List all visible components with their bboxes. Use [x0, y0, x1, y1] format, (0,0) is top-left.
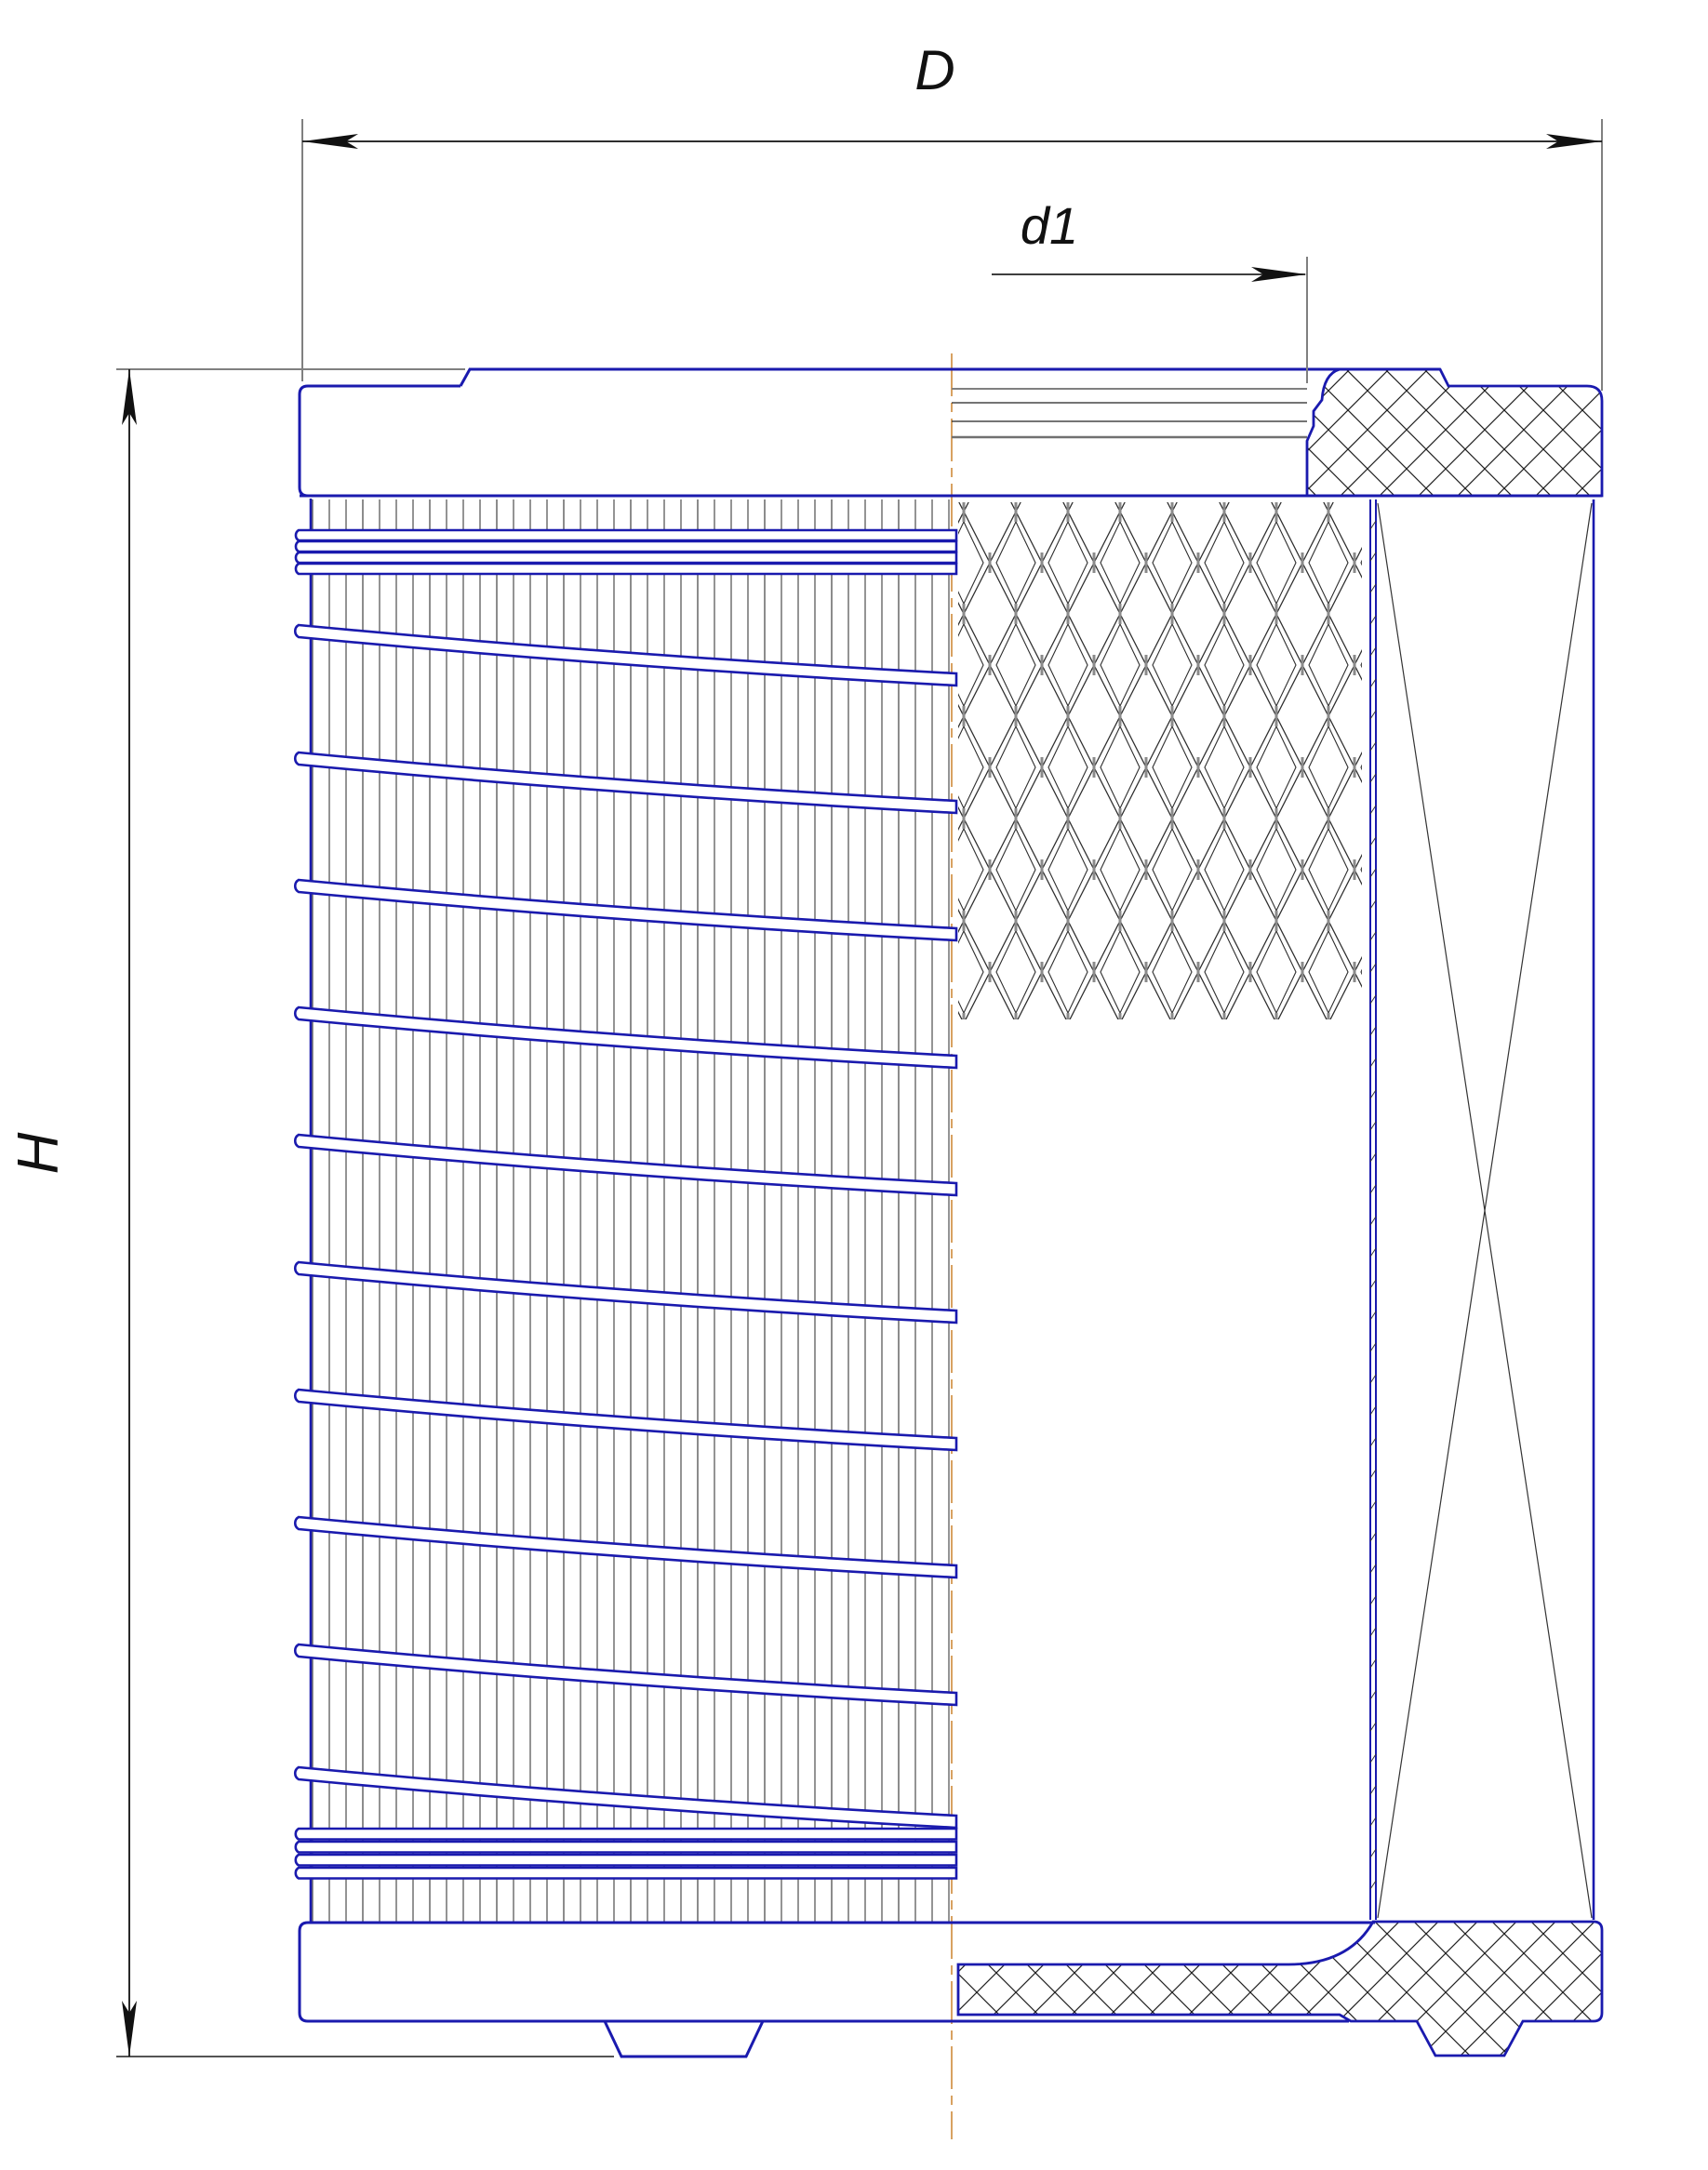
bottom-boss-exterior	[605, 2021, 763, 2057]
label-D: D	[914, 39, 954, 101]
spiral-band	[295, 1767, 956, 1828]
spiral-band	[295, 1262, 956, 1323]
spiral-band	[296, 552, 956, 563]
pleat-lines	[313, 499, 949, 1922]
dimension-D: D	[302, 39, 1602, 391]
spiral-band	[295, 752, 956, 813]
spiral-band	[296, 1868, 956, 1879]
spiral-band	[296, 541, 956, 552]
spiral-band	[296, 1855, 956, 1866]
spiral-band	[295, 1007, 956, 1068]
label-d1: d1	[1021, 196, 1078, 255]
spiral-band	[296, 530, 956, 540]
bottom-end-cap-section	[958, 1922, 1602, 2056]
spiral-band	[296, 564, 956, 574]
top-hole-interior-edges	[952, 389, 1307, 437]
spiral-band	[295, 1644, 956, 1705]
filter-element-drawing: D d1 H	[0, 0, 1708, 2170]
center-tube	[1370, 499, 1376, 1920]
spiral-band	[295, 1517, 956, 1578]
spiral-band	[295, 1390, 956, 1450]
spiral-band	[296, 1842, 956, 1853]
spiral-wrap-bands	[295, 530, 956, 1879]
technical-drawing-canvas: D d1 H	[0, 0, 1708, 2170]
top-end-cap-section	[1307, 369, 1602, 496]
media-section-band	[1378, 499, 1594, 1920]
spiral-band	[296, 1829, 956, 1840]
spiral-band	[295, 880, 956, 940]
spiral-band	[295, 1135, 956, 1195]
dimension-d1: d1	[992, 196, 1307, 383]
label-H: H	[7, 1132, 71, 1174]
support-mesh	[958, 502, 1362, 1019]
spiral-band	[295, 625, 956, 686]
